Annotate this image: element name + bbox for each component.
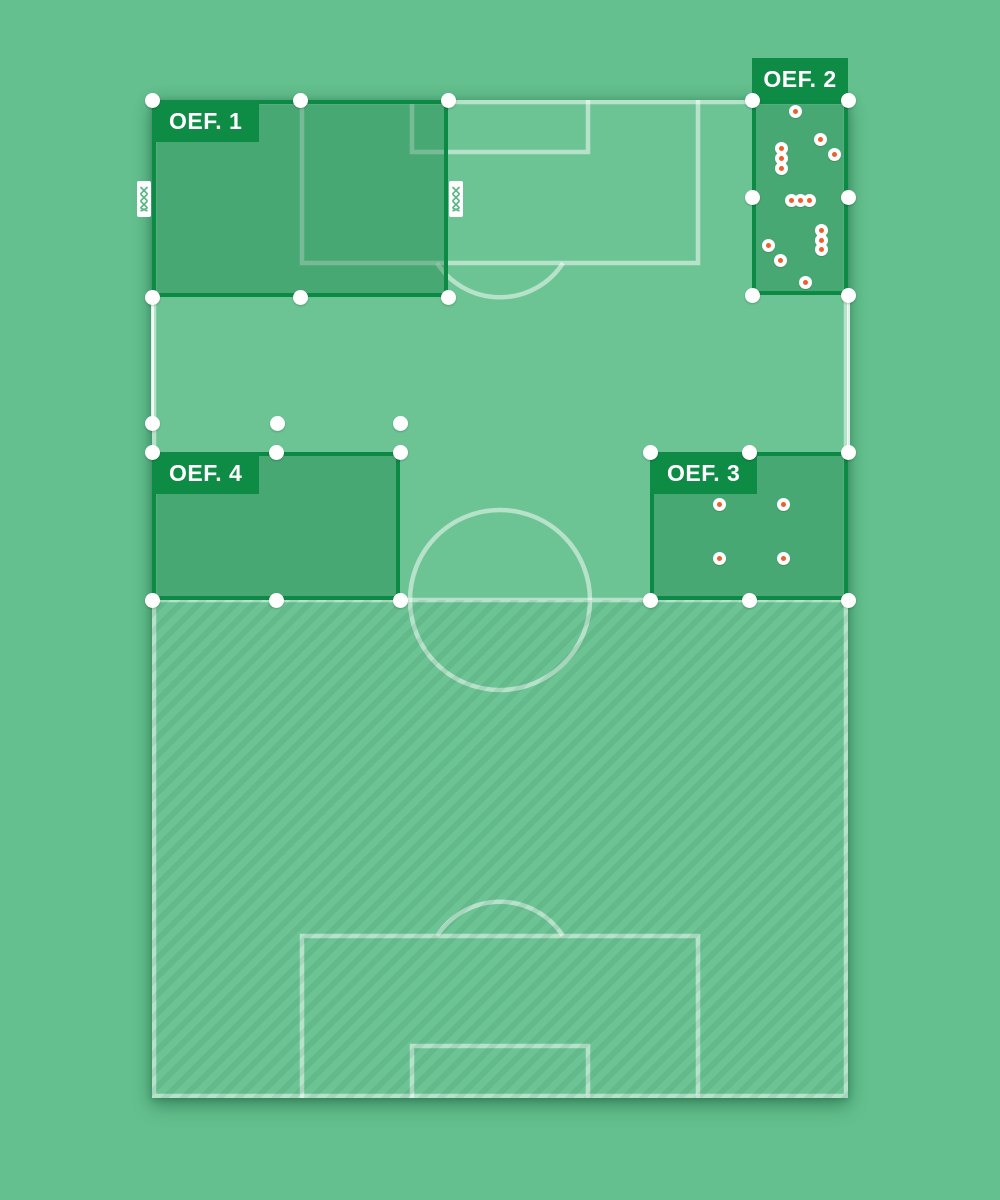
cone-marker[interactable] bbox=[814, 133, 827, 146]
cone-center-dot bbox=[779, 156, 784, 161]
cone-center-dot bbox=[717, 556, 722, 561]
resize-handle-tl[interactable] bbox=[745, 93, 760, 108]
resize-handle-br[interactable] bbox=[841, 593, 856, 608]
resize-handle-br[interactable] bbox=[393, 593, 408, 608]
resize-handle-tr[interactable] bbox=[841, 445, 856, 460]
cone-marker[interactable] bbox=[774, 254, 787, 267]
zone-label-oef-2: OEF. 2 bbox=[752, 58, 848, 100]
exercise-zone-oef-3[interactable]: OEF. 3 bbox=[650, 452, 848, 600]
cone-center-dot bbox=[798, 198, 803, 203]
cone-marker[interactable] bbox=[803, 194, 816, 207]
touchline-segment bbox=[151, 297, 154, 423]
cone-marker[interactable] bbox=[713, 552, 726, 565]
resize-handle-bl[interactable] bbox=[643, 593, 658, 608]
resize-handle-tm[interactable] bbox=[269, 445, 284, 460]
cone-marker[interactable] bbox=[789, 105, 802, 118]
resize-handle-bm[interactable] bbox=[269, 593, 284, 608]
zone-label-oef-4: OEF. 4 bbox=[152, 452, 259, 494]
mini-goal-icon[interactable] bbox=[449, 181, 463, 217]
resize-handle-tr[interactable] bbox=[841, 93, 856, 108]
loose-handle[interactable] bbox=[393, 416, 408, 431]
cone-center-dot bbox=[819, 247, 824, 252]
cone-marker[interactable] bbox=[799, 276, 812, 289]
touchline-segment bbox=[847, 297, 850, 452]
cone-marker[interactable] bbox=[815, 243, 828, 256]
cone-marker[interactable] bbox=[775, 162, 788, 175]
cone-center-dot bbox=[819, 228, 824, 233]
cone-marker[interactable] bbox=[777, 498, 790, 511]
exercise-zone-oef-2[interactable]: OEF. 2 bbox=[752, 100, 848, 295]
resize-handle-tl[interactable] bbox=[145, 445, 160, 460]
cone-center-dot bbox=[818, 137, 823, 142]
cone-center-dot bbox=[717, 502, 722, 507]
cone-center-dot bbox=[781, 556, 786, 561]
cone-marker[interactable] bbox=[713, 498, 726, 511]
resize-handle-tm[interactable] bbox=[293, 93, 308, 108]
resize-handle-bm[interactable] bbox=[293, 290, 308, 305]
cone-center-dot bbox=[781, 502, 786, 507]
resize-handle-br[interactable] bbox=[441, 290, 456, 305]
resize-handle-tr[interactable] bbox=[393, 445, 408, 460]
cone-center-dot bbox=[778, 258, 783, 263]
cone-center-dot bbox=[779, 166, 784, 171]
mini-goal-icon[interactable] bbox=[137, 181, 151, 217]
cone-center-dot bbox=[789, 198, 794, 203]
cone-center-dot bbox=[766, 243, 771, 248]
loose-handle[interactable] bbox=[145, 416, 160, 431]
resize-handle-tl[interactable] bbox=[145, 93, 160, 108]
cone-marker[interactable] bbox=[828, 148, 841, 161]
resize-handle-tr[interactable] bbox=[441, 93, 456, 108]
resize-handle-bm[interactable] bbox=[742, 593, 757, 608]
resize-handle-bl[interactable] bbox=[145, 290, 160, 305]
resize-handle-tm[interactable] bbox=[742, 445, 757, 460]
cone-marker[interactable] bbox=[762, 239, 775, 252]
goal-net-glyph bbox=[137, 181, 151, 217]
zone-label-oef-3: OEF. 3 bbox=[650, 452, 757, 494]
cone-center-dot bbox=[803, 280, 808, 285]
cone-center-dot bbox=[819, 238, 824, 243]
cone-center-dot bbox=[793, 109, 798, 114]
resize-handle-mr[interactable] bbox=[841, 190, 856, 205]
exercise-zone-oef-4[interactable]: OEF. 4 bbox=[152, 452, 400, 600]
resize-handle-br[interactable] bbox=[841, 288, 856, 303]
goal-net-glyph bbox=[449, 181, 463, 217]
loose-handle[interactable] bbox=[270, 416, 285, 431]
cone-marker[interactable] bbox=[777, 552, 790, 565]
zones-layer: OEF. 1OEF. 2OEF. 3OEF. 4 bbox=[0, 0, 1000, 1200]
exercise-zone-oef-1[interactable]: OEF. 1 bbox=[152, 100, 448, 297]
cone-center-dot bbox=[832, 152, 837, 157]
resize-handle-ml[interactable] bbox=[745, 190, 760, 205]
resize-handle-bl[interactable] bbox=[145, 593, 160, 608]
resize-handle-bl[interactable] bbox=[745, 288, 760, 303]
resize-handle-tl[interactable] bbox=[643, 445, 658, 460]
zone-label-oef-1: OEF. 1 bbox=[152, 100, 259, 142]
cone-center-dot bbox=[807, 198, 812, 203]
cone-center-dot bbox=[779, 146, 784, 151]
planner-stage: OEF. 1OEF. 2OEF. 3OEF. 4 bbox=[0, 0, 1000, 1200]
